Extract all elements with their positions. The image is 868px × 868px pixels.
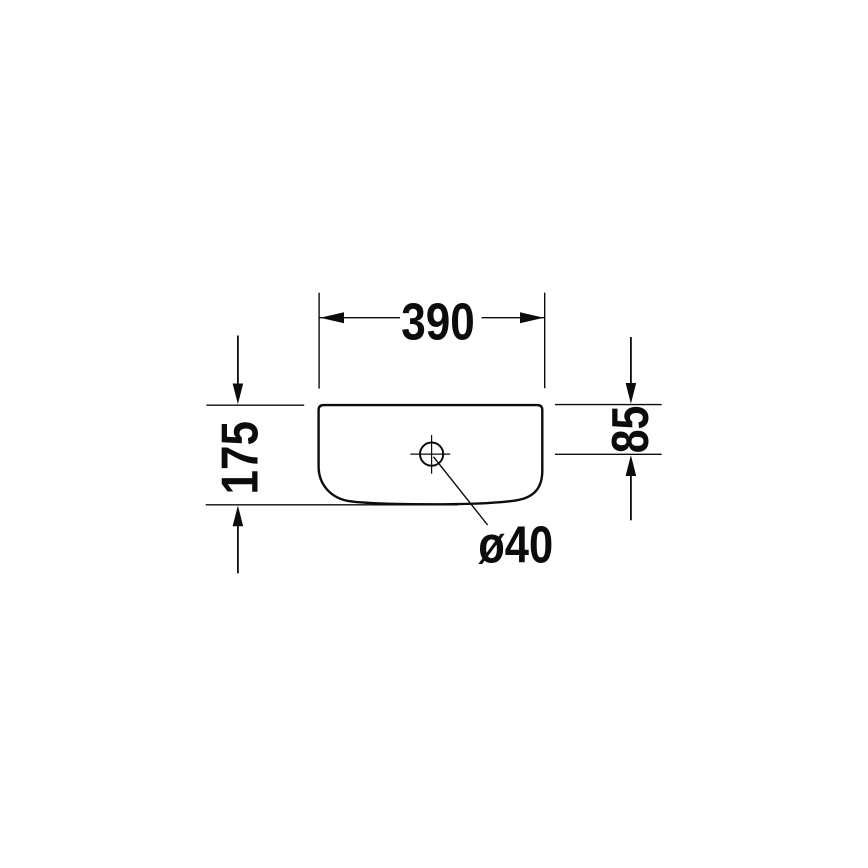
svg-text:390: 390 [401,294,475,352]
svg-text:ø40: ø40 [478,517,553,575]
svg-text:175: 175 [211,421,269,495]
svg-text:85: 85 [602,406,660,454]
